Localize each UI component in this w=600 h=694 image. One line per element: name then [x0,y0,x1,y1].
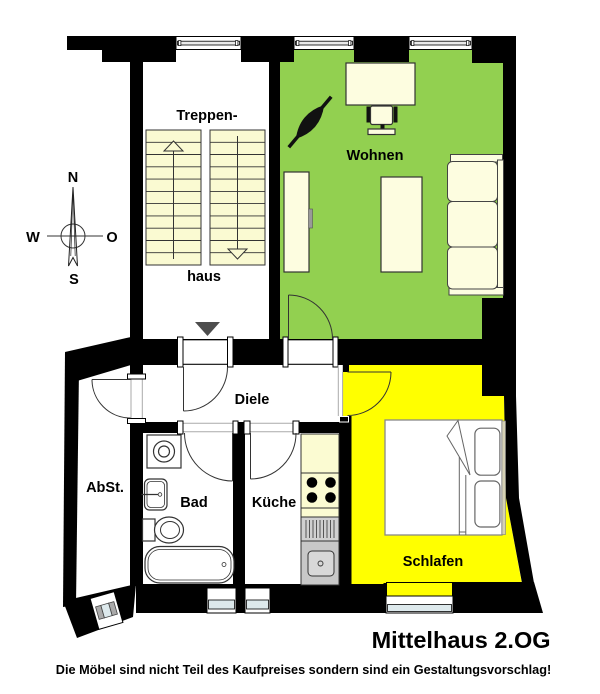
svg-text:haus: haus [187,269,221,285]
svg-text:Wohnen: Wohnen [347,148,404,164]
svg-text:O: O [106,230,117,246]
svg-text:S: S [69,272,79,288]
svg-text:Schlafen: Schlafen [403,554,463,570]
svg-text:Mittelhaus 2.OG: Mittelhaus 2.OG [372,627,551,653]
svg-text:N: N [68,170,78,186]
svg-text:W: W [26,230,40,246]
svg-text:Treppen-: Treppen- [176,108,237,124]
svg-text:Küche: Küche [252,495,296,511]
svg-text:Bad: Bad [180,495,207,511]
svg-text:AbSt.: AbSt. [86,480,124,496]
svg-text:Die Möbel sind nicht Teil des: Die Möbel sind nicht Teil des Kaufpreise… [56,663,551,677]
svg-text:Diele: Diele [235,392,270,408]
